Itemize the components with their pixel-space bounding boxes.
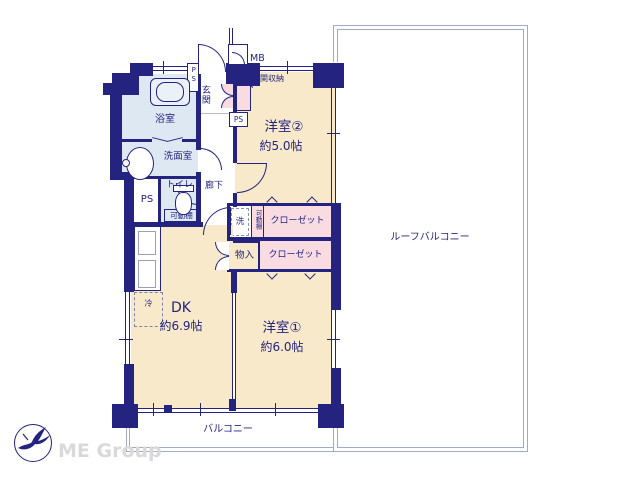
roof-balcony-label: ルーフバルコニー — [350, 232, 510, 243]
mb-partition-line — [229, 28, 230, 45]
window — [331, 86, 332, 205]
entrance-door-leaf — [198, 44, 199, 72]
balcony-label: バルコニー — [178, 424, 278, 435]
room2-name-label: 洋室② — [240, 120, 328, 135]
wash-basin — [126, 147, 154, 180]
wall — [331, 271, 341, 310]
storage-label: 物入 — [229, 251, 260, 261]
wall-corner-block — [313, 63, 344, 88]
wall — [231, 269, 237, 293]
window — [153, 70, 187, 71]
entrance-label: 玄関 — [199, 85, 209, 105]
wash-basin-faucet — [122, 159, 130, 167]
pipe-space-top-label: PS — [189, 66, 197, 84]
wall-corner-block — [112, 404, 138, 428]
window — [153, 66, 187, 67]
room1-size-label: 約6.0帖 — [237, 341, 327, 354]
window — [129, 292, 130, 364]
corridor-label: 廊下 — [202, 182, 226, 192]
window-tick — [153, 403, 154, 416]
window-tick — [327, 133, 340, 134]
window-tick — [200, 403, 201, 416]
window-tick — [327, 339, 340, 340]
kitchen-sink — [138, 231, 156, 255]
mb-partition-line — [232, 28, 233, 45]
wall — [331, 368, 341, 408]
refrigerator-label: 冷 — [136, 300, 161, 309]
wall — [227, 269, 331, 272]
pipe-space-left-label: PS — [133, 194, 161, 205]
bathroom-label: 浴室 — [140, 114, 190, 125]
wall — [331, 203, 341, 273]
closet-room1-label: クローゼット — [260, 251, 331, 261]
wall — [227, 237, 331, 241]
washer-label: 洗 — [229, 218, 251, 227]
me-group-watermark: ME Group — [58, 441, 162, 462]
window-tick — [275, 403, 276, 416]
meter-box-label: MB — [250, 54, 265, 64]
entrance-storage-label: 玄関収納 — [252, 75, 284, 84]
wall — [122, 139, 152, 142]
room2-size-label: 約5.0帖 — [240, 140, 322, 153]
toilet-bowl — [175, 192, 192, 215]
floor-plan: PS MB PS 可動棚 洋室② 約5.0帖 洋室① 約6.0帖 DK 約6.9… — [0, 0, 640, 480]
dk-size-label: 約6.9帖 — [145, 320, 217, 333]
window — [335, 86, 336, 205]
window-tick — [287, 61, 288, 74]
entrance-step-line — [198, 113, 233, 114]
partition-wall-line — [235, 293, 236, 407]
wall-end-block — [229, 399, 236, 411]
window-tick — [163, 61, 164, 74]
movable-shelf-closet-label: 可動棚 — [254, 210, 261, 230]
washroom-label: 洗面室 — [155, 152, 201, 162]
entrance-door-arc — [198, 44, 226, 72]
wall — [124, 364, 134, 408]
kitchen-stove — [138, 260, 156, 288]
window — [125, 292, 126, 364]
closet-room2-label: クローゼット — [264, 217, 331, 227]
closet-divider — [251, 205, 252, 239]
toilet-label: トイレ — [162, 181, 197, 191]
me-group-logo — [14, 424, 52, 462]
wall — [110, 83, 122, 180]
bird-icon — [14, 424, 52, 462]
window-pier — [164, 405, 172, 413]
partition-wall-line — [232, 293, 233, 407]
bathtub-inner — [156, 82, 184, 102]
room1-name-label: 洋室① — [237, 321, 327, 336]
window-tick — [119, 339, 133, 340]
